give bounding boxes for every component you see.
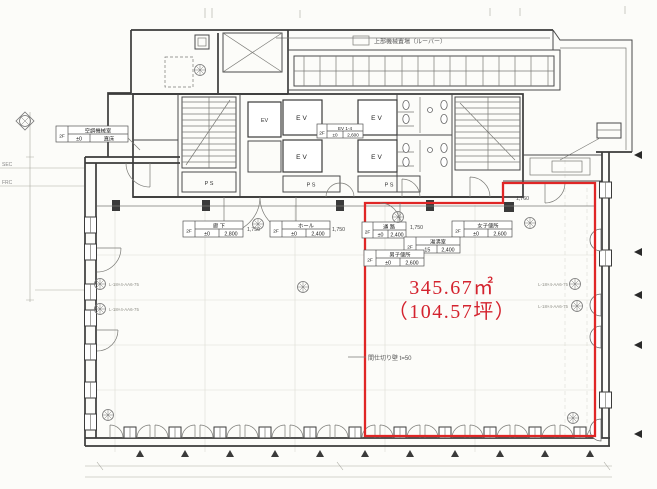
dim-hall: 1,750 xyxy=(332,227,345,233)
dim-passage: 1,750 xyxy=(410,225,423,231)
pipe-shaft-label: P S xyxy=(205,181,214,187)
corridor-tag: 2F 廊 下 ±0 2,800 xyxy=(183,221,243,238)
svg-text:2F: 2F xyxy=(367,258,373,264)
svg-text:廊 下: 廊 下 xyxy=(213,222,225,230)
ceiling-opening-dashed xyxy=(165,57,193,87)
bench-mark-icon xyxy=(16,112,34,130)
hall-tag: 2F ホール ±0 2,400 xyxy=(270,221,330,238)
core: P S EV EV EV EV EV P S P S 2F EV 1-4 xyxy=(133,94,523,233)
svg-text:直床: 直床 xyxy=(104,135,115,143)
dim-1760: 1,760 xyxy=(516,196,529,202)
passage-tag: 2F 通 路 ±0 2,400 xyxy=(362,222,406,239)
stair-right xyxy=(455,97,520,170)
column-grid xyxy=(97,160,595,452)
svg-text:女子便所: 女子便所 xyxy=(477,222,499,230)
toilets xyxy=(397,97,452,172)
roof-access-box xyxy=(597,123,621,138)
pipe-shaft-label: P S xyxy=(385,183,394,189)
svg-text:2,800: 2,800 xyxy=(224,232,237,238)
svg-text:2F: 2F xyxy=(365,230,371,236)
window-spec-note: L-18×4-AA6-75 xyxy=(109,307,139,312)
upper-right-wing xyxy=(553,30,632,160)
louver-note: 上部機械置場（ルーバー） xyxy=(374,38,446,46)
exterior-walls xyxy=(85,152,632,446)
symbol-badges: L-18×4-AA6-75 L-18×4-AA6-75 L-18×4-AA6-7… xyxy=(95,65,583,424)
svg-text:通 路: 通 路 xyxy=(383,223,396,231)
svg-text:2,600: 2,600 xyxy=(347,133,359,138)
left-margin-label-sec: SEC xyxy=(2,162,13,168)
svg-text:2,400: 2,400 xyxy=(390,233,403,239)
ev-hall-tag: 2F EV 1-4 ±0 2,600 xyxy=(317,124,363,138)
elevator-4-label: EV xyxy=(371,154,384,161)
floor-plan-drawing: SEC FRC 上部機械 xyxy=(0,0,657,489)
window-spec-note: L-18×4-AA6-75 xyxy=(109,282,139,287)
stair-left: P S xyxy=(182,97,236,192)
svg-text:±0: ±0 xyxy=(291,232,297,238)
svg-text:±0: ±0 xyxy=(473,232,479,238)
svg-text:2F: 2F xyxy=(186,229,192,235)
svg-text:2,600: 2,600 xyxy=(405,261,418,267)
women-toilet-tag: 2F 女子便所 ±0 2,600 xyxy=(452,221,512,238)
svg-text:2,600: 2,600 xyxy=(493,232,506,238)
svg-text:2,400: 2,400 xyxy=(311,232,324,238)
svg-text:2F: 2F xyxy=(455,229,461,235)
windows-left xyxy=(85,217,122,430)
service-shaft xyxy=(248,141,281,172)
leased-area-size-tsubo: （104.57坪） xyxy=(388,300,517,323)
elevator-3-label: EV xyxy=(296,154,309,161)
svg-text:±0: ±0 xyxy=(385,261,391,267)
machine-room-tag: 2F 空調機械室 ±0 直床 xyxy=(56,126,128,143)
svg-text:2F: 2F xyxy=(407,245,413,251)
svg-text:±0: ±0 xyxy=(378,233,384,239)
svg-text:湯沸室: 湯沸室 xyxy=(430,238,446,246)
svg-text:2F: 2F xyxy=(273,229,279,235)
svg-text:空調機械室: 空調機械室 xyxy=(85,127,112,135)
svg-text:EV 1-4: EV 1-4 xyxy=(338,126,352,131)
men-toilet-tag: 2F 男子便所 ±0 2,600 xyxy=(364,250,424,267)
svg-text:2,400: 2,400 xyxy=(441,248,454,254)
service-elevator-label: EV xyxy=(261,118,269,124)
pipe-shaft-label: P S xyxy=(307,183,316,189)
left-margin-label-frc: FRC xyxy=(2,180,13,186)
louver-grid: 上部機械置場（ルーバー） xyxy=(288,30,560,90)
svg-text:±0: ±0 xyxy=(76,137,82,143)
svg-text:±0: ±0 xyxy=(204,232,210,238)
window-spec-note: L-18×4-AA6-75 xyxy=(538,304,568,309)
elevator-bank: EV EV EV EV P S P S 2F EV 1-4 ±0 2,600 xyxy=(283,100,420,192)
leased-area-size-m2: 345.67㎡ xyxy=(409,275,495,299)
floor-plan-page: SEC FRC 上部機械 xyxy=(0,0,657,489)
svg-text:2F: 2F xyxy=(59,134,65,140)
svg-text:男子便所: 男子便所 xyxy=(389,251,411,259)
elevator-1-label: EV xyxy=(296,115,309,122)
svg-text:ホール: ホール xyxy=(298,223,315,230)
partition-note: 間仕切り壁 t=50 xyxy=(368,354,412,362)
svg-text:±0: ±0 xyxy=(332,133,338,138)
window-spec-note: L-18×4-AA6-75 xyxy=(538,282,568,287)
elevator-2-label: EV xyxy=(371,115,384,122)
svg-text:2F: 2F xyxy=(319,131,325,137)
right-dimension-arrows xyxy=(634,151,642,438)
